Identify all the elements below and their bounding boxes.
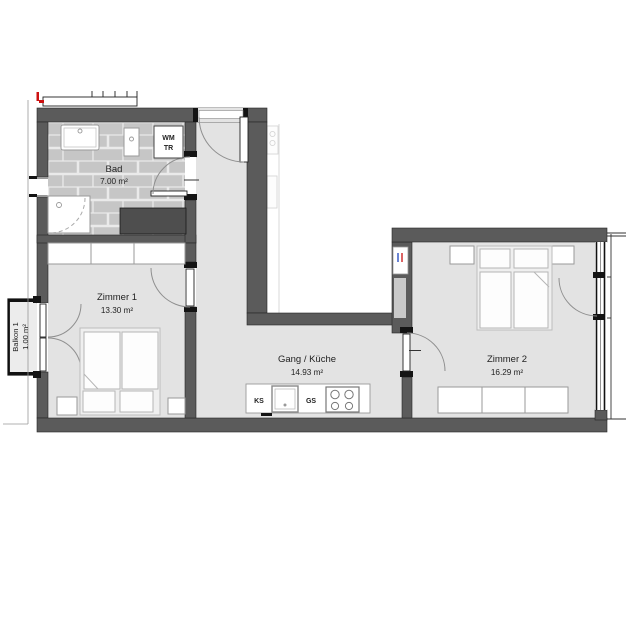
wall-zimmer1-east-upper (185, 243, 196, 262)
dryer-label: TR (164, 145, 173, 152)
pillow (514, 249, 548, 268)
wall-zimmer1-east-lower (185, 307, 196, 418)
wall-zimmer2-west-lower (402, 377, 412, 418)
wall-zimmer2-north (392, 228, 607, 242)
plumbing-riser (393, 247, 408, 318)
zimmer2-wardrobe (438, 387, 568, 413)
kitchen-sink (272, 386, 298, 412)
wall-west-lower (37, 372, 48, 418)
counter-detail-mark (261, 413, 272, 416)
zimmer1-door-leaf (186, 269, 194, 306)
pillow (83, 391, 115, 412)
nightstand (168, 398, 185, 414)
zimmer1-label: Zimmer 1 (97, 292, 137, 303)
dishwasher-label: GS (306, 398, 316, 405)
bad-area-label: 7.00 m² (100, 177, 128, 186)
floorplan-canvas: Bad 7.00 m² Zimmer 1 13.30 m² Gang / Küc… (0, 0, 627, 627)
washing-machine-label: WM (162, 135, 175, 142)
nightstand (450, 246, 474, 264)
balkon-door-leaf-bottom (40, 338, 46, 371)
wall-bad-zimmer1 (37, 235, 196, 243)
zimmer1-area-label: 13.30 m² (101, 306, 134, 315)
zimmer2-area-label: 16.29 m² (491, 368, 524, 377)
neighbour-unit-fixtures (267, 124, 279, 314)
zimmer1-bed (80, 328, 160, 415)
washer-dryer-box (154, 126, 183, 158)
wall-west-mid (37, 197, 48, 303)
nightstand (552, 246, 574, 264)
balkon-area-label: 1.00 m² (21, 324, 30, 350)
bathroom-counter (120, 208, 186, 234)
zimmer2-label: Zimmer 2 (487, 354, 527, 365)
bad-door-leaf (151, 191, 187, 196)
zimmer2-door-leaf (403, 334, 410, 371)
gang-kueche-label: Gang / Küche (278, 354, 336, 365)
north-window-sill (43, 91, 137, 106)
toilet (124, 128, 139, 156)
pillow (480, 249, 510, 268)
wall-void-west (247, 122, 267, 313)
bad-west-window (29, 176, 48, 197)
wall-south (37, 418, 607, 432)
wall-bad-east-lower (185, 200, 196, 243)
zimmer1-wardrobe (48, 243, 185, 264)
balkon-label: Balkon 1 (11, 322, 20, 352)
sink-drain-icon (284, 404, 287, 407)
pillow (120, 391, 153, 412)
bad-label: Bad (106, 164, 123, 175)
east-window-sill (604, 233, 626, 419)
balkon-door-leaf-top (40, 304, 46, 337)
cooktop-icon (326, 387, 359, 412)
wall-void-south (247, 313, 402, 325)
gang-kueche-area-label: 14.93 m² (291, 368, 324, 377)
shower (48, 196, 90, 233)
zimmer2-bed (477, 246, 552, 330)
wall-window-south-block (595, 410, 607, 420)
floorplan: Bad 7.00 m² Zimmer 1 13.30 m² Gang / Küc… (0, 0, 627, 627)
wall-west-upper (37, 122, 48, 177)
nightstand (57, 397, 77, 415)
entrance-door-leaf (240, 117, 248, 162)
entrance-threshold (199, 111, 243, 119)
fridge-label: KS (254, 398, 264, 405)
